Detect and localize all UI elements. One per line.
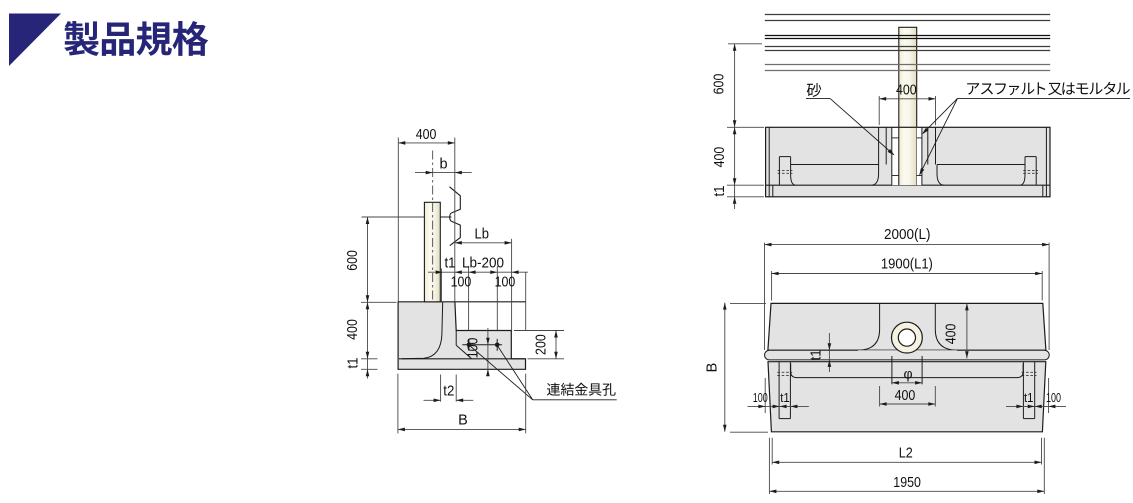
svg-text:600: 600 xyxy=(712,74,728,95)
svg-text:b: b xyxy=(440,156,448,172)
svg-text:600: 600 xyxy=(345,250,361,271)
svg-text:100: 100 xyxy=(1046,391,1061,405)
svg-text:1900(L1): 1900(L1) xyxy=(881,257,933,273)
svg-text:Lb: Lb xyxy=(475,227,490,243)
svg-text:φ: φ xyxy=(903,366,912,382)
svg-text:200: 200 xyxy=(534,334,550,355)
svg-text:2000(L): 2000(L) xyxy=(884,227,931,243)
svg-text:400: 400 xyxy=(416,127,437,143)
svg-text:100: 100 xyxy=(753,391,768,405)
svg-text:t2: t2 xyxy=(443,383,454,399)
svg-text:t1: t1 xyxy=(808,349,824,360)
svg-text:400: 400 xyxy=(943,324,959,345)
svg-text:100: 100 xyxy=(466,338,482,359)
svg-text:t1: t1 xyxy=(1024,391,1034,405)
svg-text:Lb-200: Lb-200 xyxy=(462,255,504,271)
svg-text:B: B xyxy=(458,412,468,428)
svg-text:100: 100 xyxy=(451,274,472,290)
svg-text:t1: t1 xyxy=(780,391,790,405)
svg-text:L2: L2 xyxy=(899,445,913,461)
svg-text:100: 100 xyxy=(495,274,516,290)
svg-text:1950: 1950 xyxy=(893,475,921,491)
svg-text:t1: t1 xyxy=(445,255,456,271)
svg-text:t1: t1 xyxy=(345,358,361,369)
svg-text:400: 400 xyxy=(345,319,361,340)
svg-text:B: B xyxy=(704,363,720,373)
svg-text:400: 400 xyxy=(895,388,916,404)
svg-text:400: 400 xyxy=(712,147,728,168)
svg-text:400: 400 xyxy=(896,83,917,99)
svg-text:t1: t1 xyxy=(712,186,728,197)
